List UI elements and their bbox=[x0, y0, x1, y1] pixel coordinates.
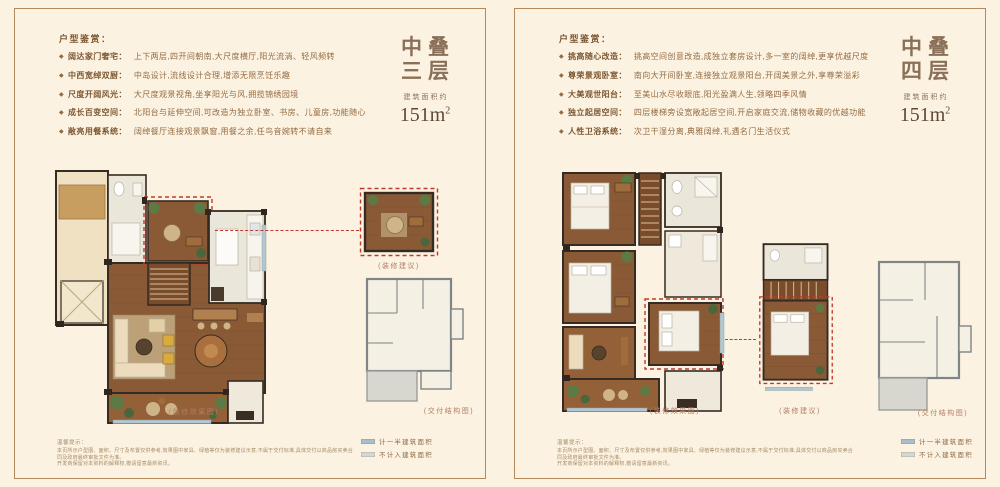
feature-text: 至美山水尽收眼底,阳光盈满人生,领略四季风情 bbox=[634, 90, 807, 99]
legend-swatch-half-area bbox=[901, 439, 915, 444]
floorplan-suggestion-room bbox=[756, 236, 836, 406]
floor-title-line2: 三层 bbox=[391, 59, 459, 83]
diamond-bullet-icon: ◆ bbox=[59, 73, 64, 79]
area-legend: 计一半建筑面积 不计入建筑面积 bbox=[901, 436, 973, 462]
features-heading: 户型鉴赏： bbox=[59, 32, 366, 45]
floor-title-block: 中叠 四层 建筑面积约 151m2 bbox=[891, 35, 959, 127]
area-value: 151m2 bbox=[891, 104, 959, 127]
feature-text: 大尺度观景视角,坐享阳光与风,拥揽锦绣园境 bbox=[134, 90, 299, 99]
legend-row-half-area: 计一半建筑面积 bbox=[361, 436, 433, 446]
diamond-bullet-icon: ◆ bbox=[59, 54, 64, 60]
caption-suggestion-plan: (装修建议) bbox=[378, 261, 420, 271]
feature-label: 挑高随心改造： bbox=[568, 52, 627, 61]
legend-row-half-area: 计一半建筑面积 bbox=[901, 436, 973, 446]
legend-swatch-excluded-area bbox=[361, 452, 375, 457]
floor-title-line2: 四层 bbox=[891, 59, 959, 83]
disclaimer-block: 温馨提示： 本页所示户型图、面积、尺寸及布置仅供参考,效果图中家具、绿植等仅为装… bbox=[57, 438, 357, 468]
feature-item: ◆挑高随心改造：挑高空间创意改造,成独立套房设计,多一室的阔绰,更享优越尺度 bbox=[559, 51, 869, 62]
disclaimer-line: 本页所示户型图、面积、尺寸及布置仅供参考,效果图中家具、绿植等仅为装修建议示意,… bbox=[57, 448, 357, 461]
features-block: 户型鉴赏： ◆阔达家门奢宅：上下两层,四开间朝南,大尺度横厅,阳光流淌、轻风频转… bbox=[59, 32, 366, 145]
feature-label: 尊荣景观卧室： bbox=[568, 71, 627, 80]
floorplan-suggestion-room bbox=[359, 187, 439, 262]
feature-text: 南向大开间卧室,连接独立观景阳台,开阔美景之外,享尊荣溢彩 bbox=[634, 71, 860, 80]
features-block: 户型鉴赏： ◆挑高随心改造：挑高空间创意改造,成独立套房设计,多一室的阔绰,更享… bbox=[559, 32, 869, 145]
panel-stack-fourth-floor: 户型鉴赏： ◆挑高随心改造：挑高空间创意改造,成独立套房设计,多一室的阔绰,更享… bbox=[514, 8, 986, 479]
area-legend: 计一半建筑面积 不计入建筑面积 bbox=[361, 436, 433, 462]
floorplan-delivery-structure bbox=[867, 256, 977, 421]
feature-label: 阔达家门奢宅： bbox=[68, 52, 127, 61]
legend-swatch-excluded-area bbox=[901, 452, 915, 457]
feature-item: ◆尺度开阔风光：大尺度观景视角,坐享阳光与风,拥揽锦绣园境 bbox=[59, 89, 366, 100]
feature-text: 北阳台与延伸空间,可改造为独立卧室、书房、儿童房,功能随心 bbox=[134, 108, 366, 117]
feature-item: ◆尊荣景观卧室：南向大开间卧室,连接独立观景阳台,开阔美景之外,享尊荣溢彩 bbox=[559, 70, 869, 81]
feature-text: 中岛设计,流线设计合理,增添无限烹饪乐趣 bbox=[134, 71, 290, 80]
feature-label: 尺度开阔风光： bbox=[68, 90, 127, 99]
feature-item: ◆中西宽绰双厨：中岛设计,流线设计合理,增添无限烹饪乐趣 bbox=[59, 70, 366, 81]
area-label: 建筑面积约 bbox=[891, 92, 959, 102]
feature-label: 独立起居空间： bbox=[568, 108, 627, 117]
feature-label: 大美观世阳台： bbox=[568, 90, 627, 99]
caption-main-plan: (装修效果图) bbox=[650, 406, 700, 416]
floor-title-block: 中叠 三层 建筑面积约 151m2 bbox=[391, 35, 459, 127]
disclaimer-line: 开发商保留对本资料的解释权,敬请留意最新资讯。 bbox=[57, 461, 357, 468]
disclaimer-block: 温馨提示： 本页所示户型图、面积、尺寸及布置仅供参考,效果图中家具、绿植等仅为装… bbox=[557, 438, 857, 468]
feature-item: ◆独立起居空间：四层楼梯旁设宽敞起居空间,开启家庭交流,储物收藏的优越功能 bbox=[559, 107, 869, 118]
floor-title-line1: 中叠 bbox=[891, 35, 959, 59]
disclaimer-line: 本页所示户型图、面积、尺寸及布置仅供参考,效果图中家具、绿植等仅为装修建议示意,… bbox=[557, 448, 857, 461]
feature-label: 成长百变空间： bbox=[68, 108, 127, 117]
diamond-bullet-icon: ◆ bbox=[59, 129, 64, 135]
feature-label: 敞亮用餐系统： bbox=[68, 127, 127, 136]
feature-item: ◆阔达家门奢宅：上下两层,四开间朝南,大尺度横厅,阳光流淌、轻风频转 bbox=[59, 51, 366, 62]
disclaimer-heading: 温馨提示： bbox=[57, 438, 357, 446]
feature-item: ◆成长百变空间：北阳台与延伸空间,可改造为独立卧室、书房、儿童房,功能随心 bbox=[59, 107, 366, 118]
diamond-bullet-icon: ◆ bbox=[559, 73, 564, 79]
floorplan-delivery-structure bbox=[351, 273, 471, 418]
floor-title-line1: 中叠 bbox=[391, 35, 459, 59]
area-value: 151m2 bbox=[391, 104, 459, 127]
feature-label: 人性卫浴系统： bbox=[568, 127, 627, 136]
caption-suggestion-plan: (装修建议) bbox=[779, 406, 821, 416]
legend-label: 不计入建筑面积 bbox=[379, 449, 433, 459]
caption-main-plan: (装修效果图) bbox=[169, 407, 219, 417]
red-dashed-connector bbox=[215, 230, 359, 231]
diamond-bullet-icon: ◆ bbox=[559, 129, 564, 135]
feature-text: 次卫干湿分离,典雅阔绰,礼遇名门生活仪式 bbox=[634, 127, 790, 136]
diamond-bullet-icon: ◆ bbox=[59, 92, 64, 98]
feature-label: 中西宽绰双厨： bbox=[68, 71, 127, 80]
diamond-bullet-icon: ◆ bbox=[559, 54, 564, 60]
feature-item: ◆大美观世阳台：至美山水尽收眼底,阳光盈满人生,领略四季风情 bbox=[559, 89, 869, 100]
caption-delivery-plan: (交付结构图) bbox=[424, 406, 474, 416]
disclaimer-heading: 温馨提示： bbox=[557, 438, 857, 446]
legend-label: 不计入建筑面积 bbox=[919, 449, 973, 459]
feature-item: ◆人性卫浴系统：次卫干湿分离,典雅阔绰,礼遇名门生活仪式 bbox=[559, 126, 869, 137]
disclaimer-line: 开发商保留对本资料的解释权,敬请留意最新资讯。 bbox=[557, 461, 857, 468]
legend-label: 计一半建筑面积 bbox=[919, 436, 973, 446]
area-label: 建筑面积约 bbox=[391, 92, 459, 102]
legend-swatch-half-area bbox=[361, 439, 375, 444]
feature-text: 阔绰餐厅连接观景飘窗,用餐之余,任鸟音婉转不请自来 bbox=[134, 127, 332, 136]
diamond-bullet-icon: ◆ bbox=[559, 110, 564, 116]
feature-text: 上下两层,四开间朝南,大尺度横厅,阳光流淌、轻风频转 bbox=[134, 52, 335, 61]
feature-item: ◆敞亮用餐系统：阔绰餐厅连接观景飘窗,用餐之余,任鸟音婉转不请自来 bbox=[59, 126, 366, 137]
floorplan-main-third-floor bbox=[51, 167, 271, 434]
floorplan-main-fourth-floor bbox=[557, 167, 727, 422]
caption-delivery-plan: (交付结构图) bbox=[918, 408, 968, 418]
panel-stack-third-floor: 户型鉴赏： ◆阔达家门奢宅：上下两层,四开间朝南,大尺度横厅,阳光流淌、轻风频转… bbox=[14, 8, 486, 479]
features-heading: 户型鉴赏： bbox=[559, 32, 869, 45]
diamond-bullet-icon: ◆ bbox=[559, 92, 564, 98]
feature-text: 挑高空间创意改造,成独立套房设计,多一室的阔绰,更享优越尺度 bbox=[634, 52, 869, 61]
legend-row-excluded-area: 不计入建筑面积 bbox=[361, 449, 433, 459]
feature-text: 四层楼梯旁设宽敞起居空间,开启家庭交流,储物收藏的优越功能 bbox=[634, 108, 866, 117]
diamond-bullet-icon: ◆ bbox=[59, 110, 64, 116]
legend-label: 计一半建筑面积 bbox=[379, 436, 433, 446]
red-dashed-connector bbox=[725, 339, 756, 340]
legend-row-excluded-area: 不计入建筑面积 bbox=[901, 449, 973, 459]
